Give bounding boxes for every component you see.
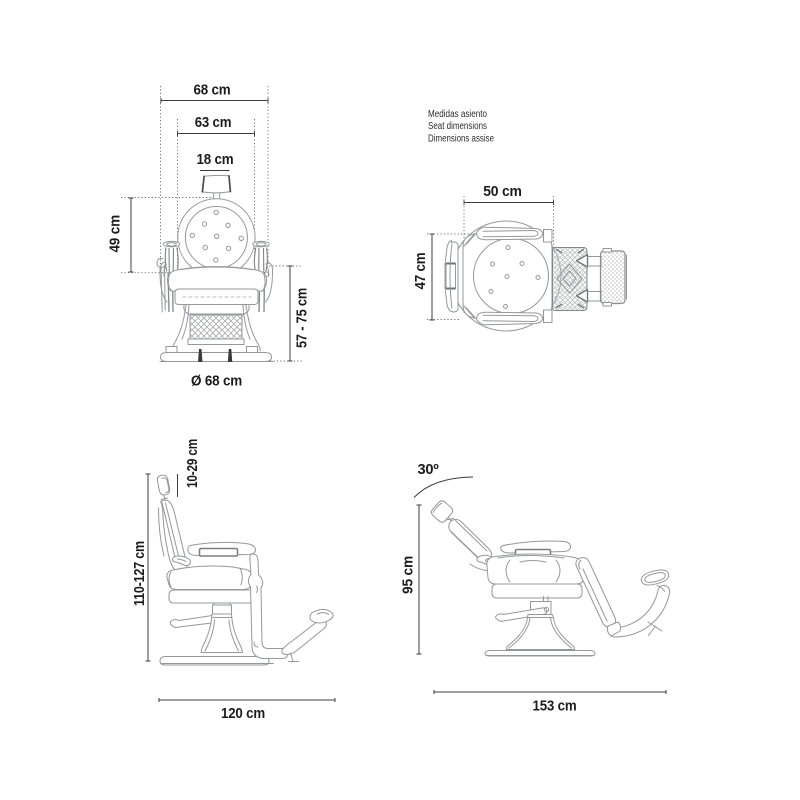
svg-text:Dimensions assise: Dimensions assise (428, 134, 494, 145)
svg-text:57 - 75 cm: 57 - 75 cm (295, 288, 311, 348)
svg-text:49 cm: 49 cm (108, 215, 124, 253)
svg-text:68 cm: 68 cm (194, 83, 231, 99)
svg-text:Seat dimensions: Seat dimensions (428, 121, 487, 132)
svg-text:47 cm: 47 cm (413, 253, 429, 290)
svg-text:Medidas asiento: Medidas asiento (428, 109, 487, 120)
svg-text:63 cm: 63 cm (195, 115, 232, 131)
svg-text:50 cm: 50 cm (483, 184, 522, 200)
svg-text:Ø 68 cm: Ø 68 cm (191, 374, 242, 390)
svg-text:120 cm: 120 cm (221, 706, 265, 722)
svg-text:30º: 30º (418, 462, 440, 478)
svg-text:10-29 cm: 10-29 cm (185, 439, 201, 488)
svg-text:153 cm: 153 cm (533, 699, 577, 715)
svg-text:18 cm: 18 cm (197, 152, 234, 168)
svg-text:95 cm: 95 cm (401, 556, 417, 594)
svg-text:110-127 cm: 110-127 cm (132, 541, 148, 606)
